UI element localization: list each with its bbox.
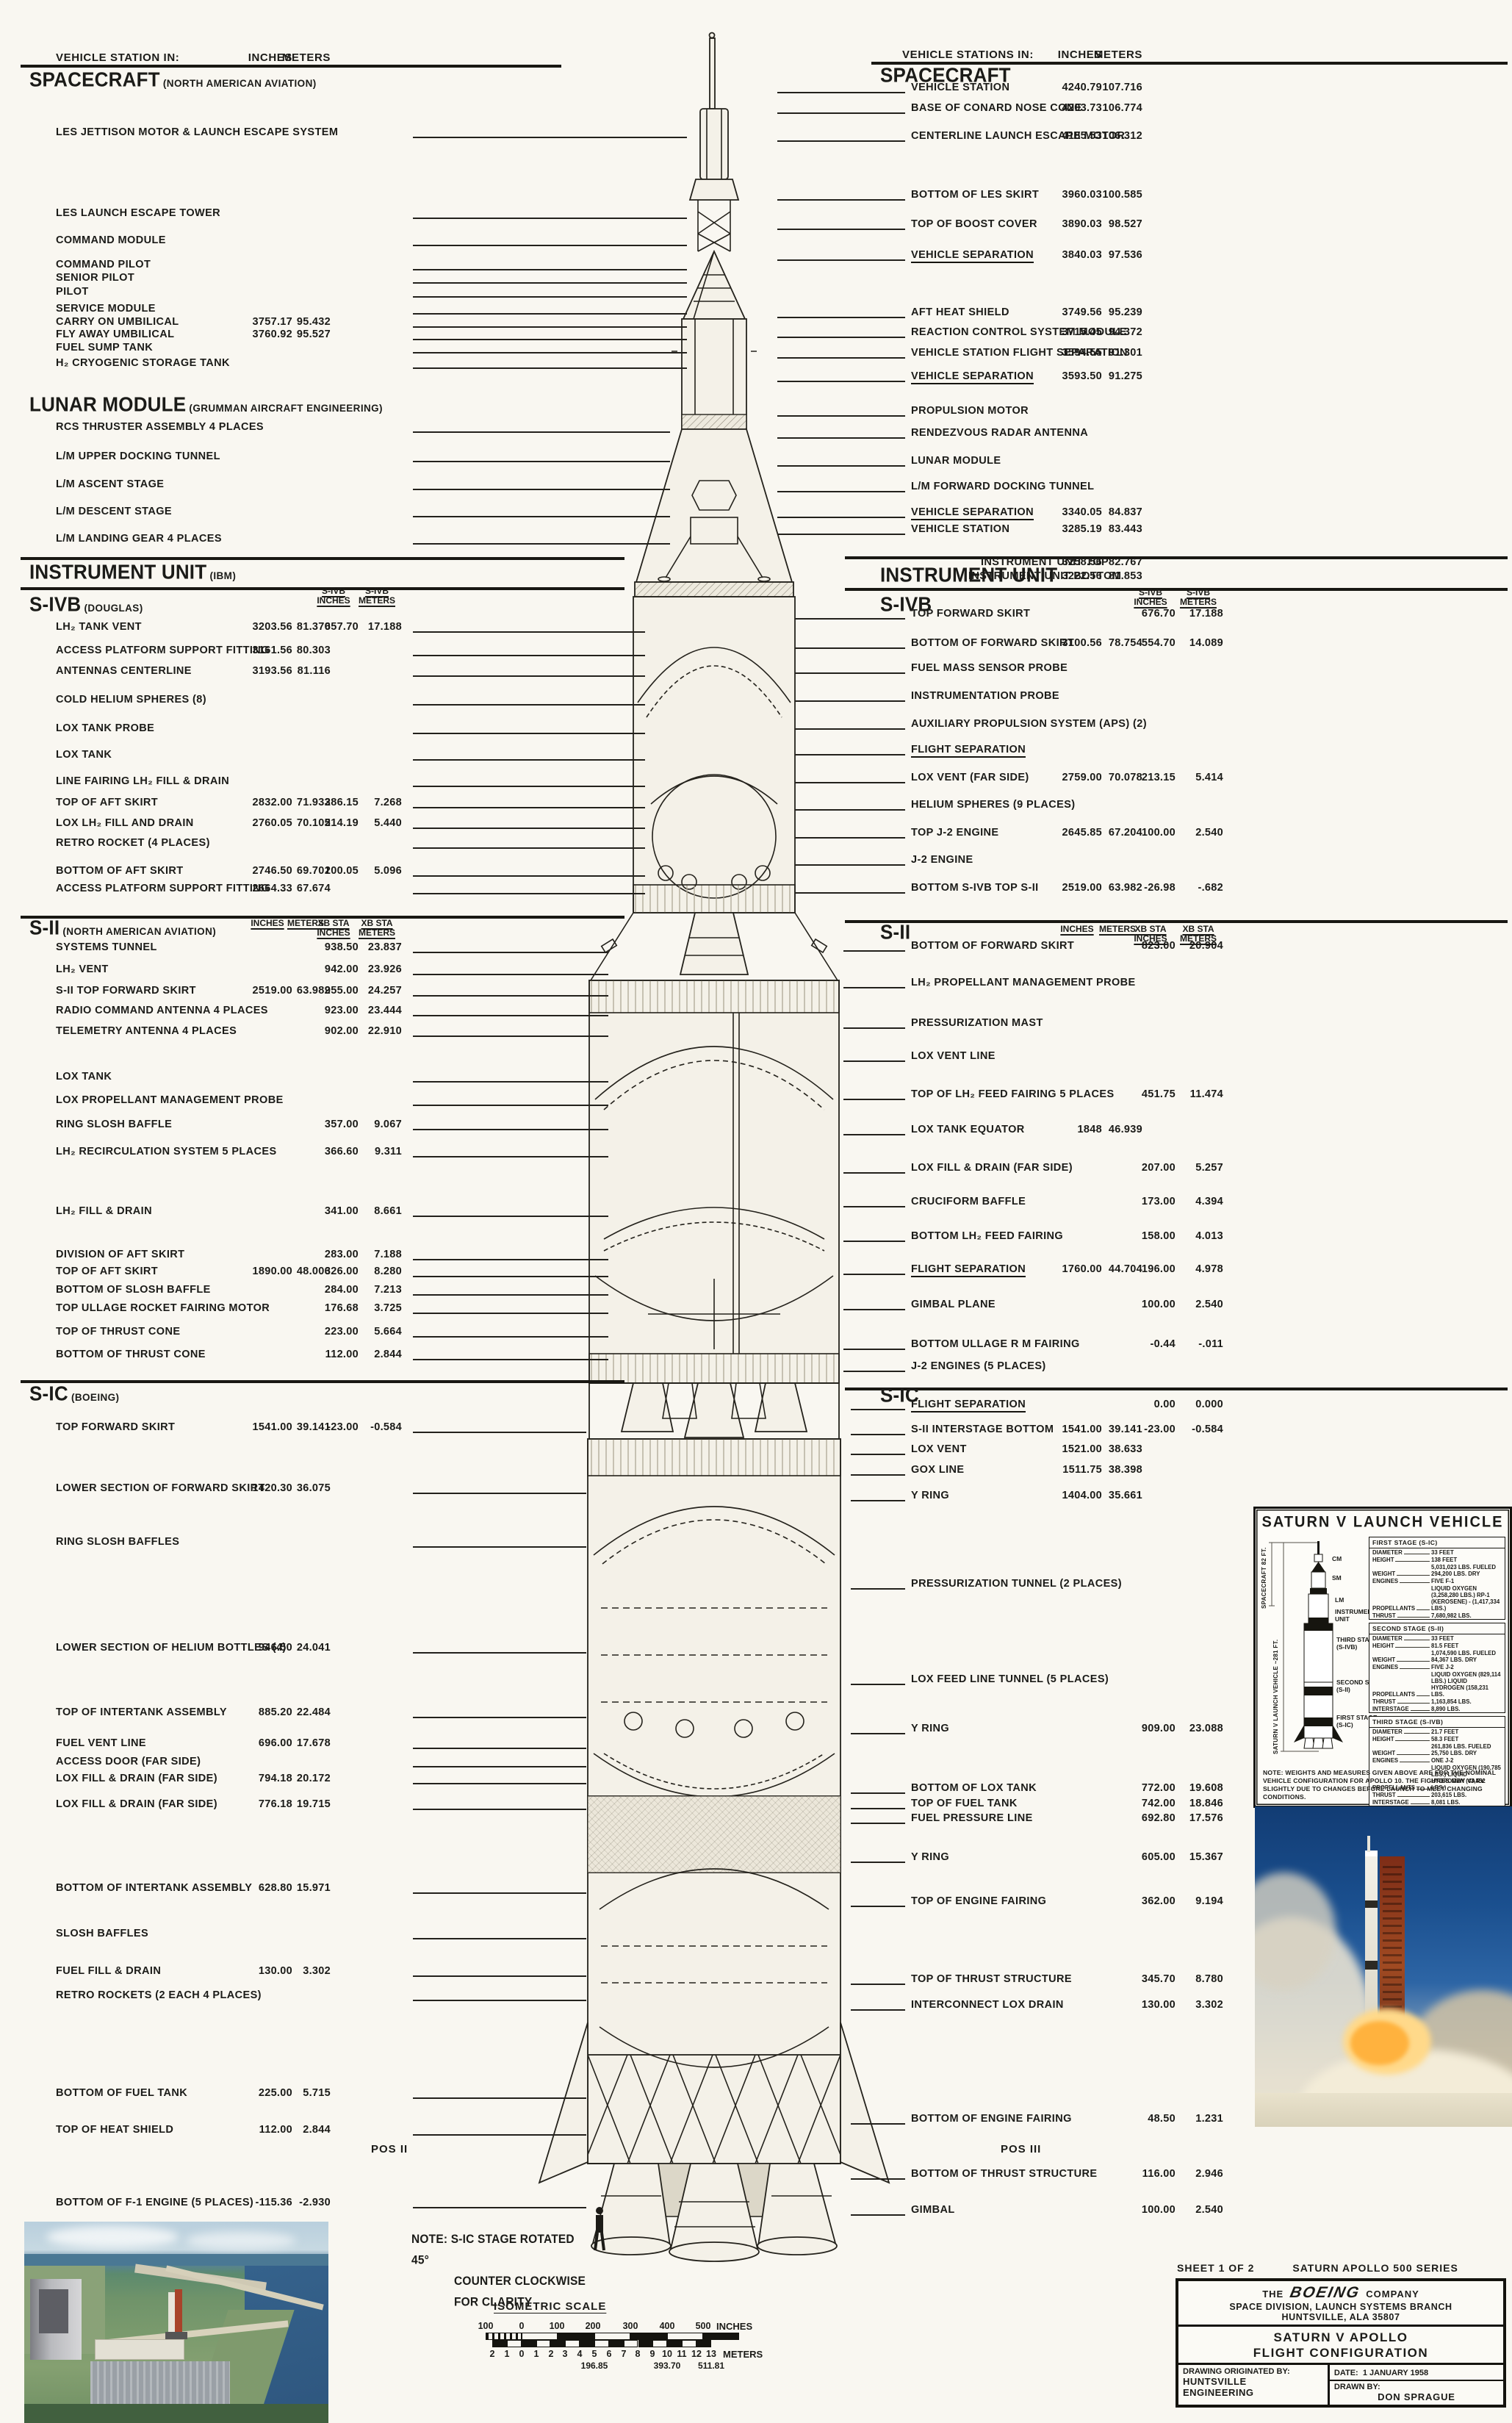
leader-line <box>413 1259 608 1260</box>
station-label: AUXILIARY PROPULSION SYSTEM (APS) (2) <box>911 718 1147 730</box>
station-label: PRESSURIZATION TUNNEL (2 PLACES) <box>911 1578 1122 1590</box>
station-value: 81.853 <box>1062 570 1142 582</box>
leader-line <box>777 534 905 535</box>
spec-row: HEIGHT138 FEET <box>1369 1556 1505 1563</box>
leader-line <box>851 1792 905 1794</box>
scale-item: 300 <box>623 2321 638 2331</box>
station-row: VEHICLE STATION FLIGHT SEPARATION3594.55… <box>0 347 1512 362</box>
spec-value: FIVE J-2 <box>1431 1664 1502 1670</box>
leader-line <box>851 2123 905 2125</box>
spec-group-title: THIRD STAGE (S-IVB) <box>1369 1717 1505 1728</box>
inset-note: NOTE: WEIGHTS AND MEASURES GIVEN ABOVE A… <box>1263 1769 1502 1801</box>
station-row: AUXILIARY PROPULSION SYSTEM (APS) (2) <box>0 718 1512 733</box>
station-value: 9.311 <box>321 1146 402 1157</box>
spec-value: 1,074,590 LBS. FUELED 84,367 LBS. DRY <box>1431 1650 1502 1663</box>
scale-item <box>594 2340 609 2347</box>
leader-line <box>413 1546 586 1548</box>
pos-iii-label: POS III <box>1001 2143 1041 2155</box>
leader-line <box>413 1156 608 1157</box>
leader-line <box>851 1588 905 1590</box>
station-label: FUEL PRESSURE LINE <box>911 1812 1033 1824</box>
leader-dots <box>1411 1710 1430 1711</box>
leader-line <box>851 1984 905 1985</box>
leader-line <box>795 782 905 783</box>
spec-group-title: SECOND STAGE (S-II) <box>1369 1623 1505 1634</box>
station-value: 97.536 <box>1062 249 1142 261</box>
lm-label: LM <box>1335 1597 1344 1604</box>
station-value: 84.837 <box>1062 506 1142 518</box>
scale-item: 11 <box>677 2349 686 2359</box>
leader-line <box>777 357 905 359</box>
station-label: BOTTOM OF FUEL TANK <box>56 2087 187 2099</box>
station-label: BOTTOM OF ENGINE FAIRING <box>911 2113 1072 2125</box>
station-row: CENTERLINE LAUNCH ESCAPE MOTOR4185.53106… <box>0 130 1512 145</box>
leader-line <box>843 1027 905 1029</box>
leader-dots <box>1404 1733 1430 1734</box>
station-value: 38.398 <box>1062 1464 1142 1476</box>
station-value: 7.188 <box>321 1249 402 1260</box>
leader-line <box>777 381 905 382</box>
spec-row: ENGINESONE J-2 <box>1369 1756 1505 1764</box>
station-label: GIMBAL <box>911 2204 955 2216</box>
station-row: LOX VENT1521.0038.633 <box>0 1443 1512 1458</box>
leader-line <box>851 1862 905 1863</box>
station-label: BOTTOM LH₂ FEED FAIRING <box>911 1230 1063 1242</box>
station-row: LH₂ PROPELLANT MANAGEMENT PROBE <box>0 977 1512 991</box>
station-value: 2.540 <box>1142 2204 1223 2216</box>
station-label: TOP OF THRUST STRUCTURE <box>911 1973 1072 1985</box>
station-label: Y RING <box>911 1490 949 1501</box>
station-row: DIVISION OF AFT SKIRT283.007.188 <box>0 1249 1512 1263</box>
leader-line <box>413 1105 608 1106</box>
leader-line <box>777 517 905 518</box>
leader-line <box>413 269 687 270</box>
station-label: FUEL VENT LINE <box>56 1737 146 1749</box>
spec-value: LIQUID OXYGEN (3,258,280 LBS.) RP-1 (KER… <box>1431 1585 1502 1612</box>
station-label: TOP OF THRUST CONE <box>56 1326 180 1338</box>
station-label: PRESSURIZATION MAST <box>911 1017 1043 1029</box>
leader-line <box>777 229 905 230</box>
station-row: CRUCIFORM BAFFLE173.004.394 <box>0 1196 1512 1210</box>
station-row: LOX VENT (FAR SIDE)2759.0070.078213.155.… <box>0 772 1512 786</box>
scale-item <box>558 2333 594 2340</box>
station-value: 7.213 <box>321 1284 402 1296</box>
leader-dots <box>1400 1762 1430 1762</box>
spec-key: ENGINES <box>1372 1664 1398 1670</box>
station-label: AFT HEAT SHIELD <box>911 306 1009 318</box>
scale-item <box>667 2340 682 2347</box>
spec-value: LIQUID OXYGEN (829,114 LBS.) LIQUID HYDR… <box>1431 1671 1502 1698</box>
scale-item <box>492 2340 507 2347</box>
leader-line <box>795 672 905 674</box>
station-row: INSTRUMENTATION PROBE <box>0 690 1512 705</box>
scale-item: 0 <box>519 2349 525 2359</box>
station-row: LOX TANK <box>0 1071 1512 1085</box>
station-label: GOX LINE <box>911 1464 965 1476</box>
leader-line <box>413 733 645 734</box>
station-value: 18.846 <box>1142 1798 1223 1809</box>
station-value: 22.484 <box>250 1706 331 1718</box>
station-label: DIVISION OF AFT SKIRT <box>56 1249 184 1260</box>
leader-line <box>777 259 905 261</box>
station-value: 17.188 <box>1142 608 1223 620</box>
station-label: HELIUM SPHERES (9 PLACES) <box>911 799 1076 811</box>
leader-line <box>851 1474 905 1476</box>
station-label: LH₂ PROPELLANT MANAGEMENT PROBE <box>911 977 1136 988</box>
station-label: INSTRUMENTATION PROBE <box>911 690 1059 702</box>
spec-value: ONE J-2 <box>1431 1757 1502 1764</box>
station-value: 5.257 <box>1142 1162 1223 1174</box>
boeing-logo: BOEING <box>1285 2284 1364 2302</box>
station-label: LOX VENT (FAR SIDE) <box>911 772 1029 783</box>
spec-row: PROPELLANTSLIQUID OXYGEN (3,258,280 LBS.… <box>1369 1584 1505 1612</box>
saturn-v-flight-configuration-drawing: VEHICLE STATION IN:INCHESMETERSSPACECRAF… <box>0 0 1512 2423</box>
station-label: TOP OF INTERTANK ASSEMBLY <box>56 1706 227 1718</box>
station-label: INTERCONNECT LOX DRAIN <box>911 1999 1064 2011</box>
drawing-title: SATURN V APOLLOFLIGHT CONFIGURATION <box>1178 2327 1503 2365</box>
title-block: THE BOEING COMPANY SPACE DIVISION, LAUNC… <box>1176 2278 1506 2408</box>
station-row: BOTTOM ULLAGE R M FAIRING-0.44-.011 <box>0 1338 1512 1353</box>
section-rule <box>845 1388 1508 1390</box>
station-label: RADIO COMMAND ANTENNA 4 PLACES <box>56 1005 268 1016</box>
scale-item: 500 <box>696 2321 711 2331</box>
station-value: 1.231 <box>1142 2113 1223 2125</box>
station-label: J-2 ENGINE <box>911 854 973 866</box>
station-row: GOX LINE1511.7538.398 <box>0 1464 1512 1479</box>
leader-dots <box>1397 1661 1430 1662</box>
station-label: BOTTOM OF FORWARD SKIRT <box>911 940 1074 952</box>
station-label: COMMAND MODULE <box>56 234 166 246</box>
station-value: 14.089 <box>1142 637 1223 649</box>
station-value: 83.443 <box>1062 523 1142 535</box>
leader-line <box>795 892 905 894</box>
station-label: VEHICLE SEPARATION <box>911 249 1034 263</box>
spec-value: 58.3 FEET <box>1431 1736 1502 1742</box>
spacecraft-dim-label: SPACECRAFT 82 FT. <box>1261 1541 1267 1609</box>
spec-key: WEIGHT <box>1372 1750 1395 1756</box>
leader-line <box>843 950 905 952</box>
leader-line <box>843 1206 905 1207</box>
station-row: INSTRUMENT UNIT BOTTOM3222.5681.853 <box>0 570 1512 585</box>
leader-line <box>795 618 905 620</box>
station-row: VEHICLE SEPARATION3340.0584.837 <box>0 506 1512 521</box>
leader-line <box>413 1216 608 1217</box>
column-header-title: VEHICLE STATIONS IN: <box>902 49 1034 61</box>
station-row: LH₂ VENT942.0023.926 <box>0 963 1512 978</box>
leader-line <box>413 1015 608 1016</box>
station-label: CRUCIFORM BAFFLE <box>911 1196 1026 1207</box>
station-label: SLOSH BAFFLES <box>56 1928 148 1939</box>
station-label: LH₂ RECIRCULATION SYSTEM 5 PLACES <box>56 1146 277 1157</box>
station-label: VEHICLE SEPARATION <box>911 370 1034 384</box>
scale-item: 100 <box>550 2321 565 2331</box>
scale-item: 393.70 <box>654 2361 681 2371</box>
station-label: BOTTOM OF THRUST STRUCTURE <box>911 2168 1097 2180</box>
leader-dots <box>1400 1668 1430 1669</box>
column-subheader: S-IVB METERS <box>1170 588 1226 607</box>
station-row: TOP FORWARD SKIRT676.7017.188 <box>0 608 1512 622</box>
leader-line <box>843 1349 905 1350</box>
station-value: 2.540 <box>1142 827 1223 839</box>
leader-dots <box>1404 1554 1430 1554</box>
vab-rollout-aerial-photo <box>24 2222 328 2423</box>
leader-dots <box>1397 1617 1430 1618</box>
station-row: J-2 ENGINES (5 PLACES) <box>0 1360 1512 1375</box>
station-label: LOX FILL & DRAIN (FAR SIDE) <box>911 1162 1073 1174</box>
leader-line <box>413 1294 608 1296</box>
station-row: VEHICLE STATION4240.79107.716 <box>0 82 1512 96</box>
scale-item <box>522 2340 536 2347</box>
spec-row: DIAMETER33 FEET <box>1369 1634 1505 1642</box>
sheet-line: SHEET 1 OF 2SATURN APOLLO 500 SERIES <box>1177 2262 1500 2274</box>
leader-line <box>851 1808 905 1809</box>
isometric-scale: ISOMETRIC SCALE 1000100200300400500INCHE… <box>463 2296 801 2391</box>
station-label: L/M FORWARD DOCKING TUNNEL <box>911 481 1094 492</box>
station-label: PROPULSION MOTOR <box>911 405 1029 417</box>
spec-key: DIAMETER <box>1372 1729 1403 1735</box>
spec-row: HEIGHT58.3 FEET <box>1369 1735 1505 1742</box>
spec-key: DIAMETER <box>1372 1549 1403 1556</box>
station-row: GIMBAL100.002.540 <box>0 2204 1512 2219</box>
station-value: 91.301 <box>1062 347 1142 359</box>
leader-line <box>851 1500 905 1501</box>
scale-item <box>638 2340 653 2347</box>
scale-item: 7 <box>622 2349 627 2359</box>
spec-group: FIRST STAGE (S-IC)DIAMETER33 FEETHEIGHT1… <box>1369 1537 1505 1620</box>
scale-item: 200 <box>586 2321 601 2331</box>
spec-value: 21.7 FEET <box>1431 1729 1502 1735</box>
station-value: 35.661 <box>1062 1490 1142 1501</box>
leader-dots <box>1416 1695 1430 1696</box>
station-label: BOTTOM S-IVB TOP S-II <box>911 882 1039 894</box>
leader-line <box>843 1241 905 1242</box>
leader-dots <box>1395 1647 1430 1648</box>
station-row: COMMAND MODULE <box>0 234 1512 249</box>
scale-item: 2 <box>549 2349 554 2359</box>
station-label: LUNAR MODULE <box>911 455 1001 467</box>
column-header-title: VEHICLE STATION IN: <box>56 51 179 64</box>
spec-key: DIAMETER <box>1372 1635 1403 1642</box>
leader-line <box>413 1081 608 1083</box>
station-label: LH₂ VENT <box>56 963 109 975</box>
station-value: 107.716 <box>1062 82 1142 93</box>
spec-row: ENGINESFIVE J-2 <box>1369 1663 1505 1670</box>
station-label: LH₂ TANK VENT <box>56 621 142 633</box>
isometric-scale-title: ISOMETRIC SCALE <box>494 2300 606 2313</box>
leader-line <box>413 655 645 656</box>
leader-dots <box>1395 1561 1430 1562</box>
station-row: AFT HEAT SHIELD3749.5695.239 <box>0 306 1512 321</box>
leader-line <box>843 1099 905 1100</box>
station-row: BOTTOM OF FORWARD SKIRT823.0020.904 <box>0 940 1512 955</box>
station-row: TOP J-2 ENGINE2645.8567.204100.002.540 <box>0 827 1512 841</box>
station-row: FUEL MASS SENSOR PROBE <box>0 662 1512 677</box>
scale-item: 100 <box>478 2321 494 2331</box>
station-value: 106.312 <box>1062 130 1142 142</box>
leader-line <box>413 1035 608 1037</box>
saturn-v-launch-photo <box>1255 1806 1512 2127</box>
station-row: LOX FILL & DRAIN (FAR SIDE)207.005.257 <box>0 1162 1512 1177</box>
leader-line <box>413 631 645 633</box>
scale-item: 5 <box>592 2349 597 2359</box>
leader-line <box>413 847 645 849</box>
section-name: S-II <box>29 916 60 940</box>
scale-item <box>550 2340 565 2347</box>
station-label: TOP OF LH₂ FEED FAIRING 5 PLACES <box>911 1088 1115 1100</box>
station-row: PROPULSION MOTOR <box>0 405 1512 420</box>
scale-item <box>652 2340 667 2347</box>
station-value: 15.367 <box>1142 1851 1223 1863</box>
station-row: BOTTOM OF SLOSH BAFFLE284.007.213 <box>0 1284 1512 1299</box>
leader-line <box>777 437 905 439</box>
station-value: 94.372 <box>1062 326 1142 338</box>
station-row: LH₂ TANK VENT3203.5681.370657.7017.188 <box>0 621 1512 636</box>
scale-item: 2 <box>490 2349 495 2359</box>
station-row: FLIGHT SEPARATION1760.0044.704196.004.97… <box>0 1263 1512 1278</box>
station-label: VEHICLE STATION <box>911 523 1009 535</box>
scale-item <box>522 2333 558 2340</box>
scale-item: 1 <box>505 2349 510 2359</box>
spec-value: 33 FEET <box>1431 1635 1502 1642</box>
column-header-meters: METERS <box>1084 49 1142 61</box>
leader-line <box>777 199 905 201</box>
section-subtitle: (NORTH AMERICAN AVIATION) <box>60 926 216 937</box>
scale-item: 9 <box>650 2349 655 2359</box>
scale-item <box>594 2333 630 2340</box>
leader-line <box>795 700 905 702</box>
scale-item: 13 <box>706 2349 716 2359</box>
spec-value: 7,680,982 LBS. <box>1431 1612 1502 1619</box>
station-value: 0.000 <box>1142 1399 1223 1410</box>
station-value: 5.664 <box>321 1326 402 1338</box>
leader-line <box>413 367 687 369</box>
scale-item <box>609 2340 624 2347</box>
spec-row: WEIGHT261,836 LBS. FUELED 25,750 LBS. DR… <box>1369 1742 1505 1756</box>
spec-value: 1,163,854 LBS. <box>1431 1698 1502 1705</box>
leader-line <box>795 809 905 811</box>
leader-line <box>777 317 905 318</box>
station-value: 9.194 <box>1142 1895 1223 1907</box>
spec-row: THRUST7,680,982 LBS. <box>1369 1612 1505 1619</box>
station-value: 17.678 <box>250 1737 331 1749</box>
scale-item: INCHES <box>716 2321 752 2332</box>
scale-item <box>703 2333 739 2340</box>
station-label: SENIOR PILOT <box>56 272 134 284</box>
scale-item: 8 <box>636 2349 641 2359</box>
leader-dots <box>1400 1582 1430 1583</box>
leader-dots <box>1397 1754 1430 1755</box>
leader-line <box>413 1748 586 1749</box>
spec-value: 81.5 FEET <box>1431 1643 1502 1649</box>
station-value: 8.780 <box>1142 1973 1223 1985</box>
station-value: -.011 <box>1142 1338 1223 1350</box>
column-header-meters: METERS <box>272 51 331 64</box>
spec-row: DIAMETER33 FEET <box>1369 1548 1505 1556</box>
scale-item: 0 <box>519 2321 525 2331</box>
spec-key: HEIGHT <box>1372 1643 1394 1649</box>
spec-key: THRUST <box>1372 1612 1396 1619</box>
leader-line <box>413 282 687 284</box>
station-row: L/M FORWARD DOCKING TUNNEL <box>0 481 1512 495</box>
leader-line <box>413 875 645 877</box>
scale-item: METERS <box>723 2349 763 2360</box>
station-value: 19.608 <box>1142 1782 1223 1794</box>
station-value: 17.576 <box>1142 1812 1223 1824</box>
leader-line <box>413 1892 586 1894</box>
station-row: SENIOR PILOT <box>0 272 1512 287</box>
leader-line <box>843 1172 905 1174</box>
station-label: LES LAUNCH ESCAPE TOWER <box>56 207 220 219</box>
spec-key: WEIGHT <box>1372 1656 1395 1663</box>
station-value: 98.527 <box>1062 218 1142 230</box>
station-value: 23.926 <box>321 963 402 975</box>
leader-line <box>413 2134 586 2136</box>
station-row: VEHICLE SEPARATION3593.5091.275 <box>0 370 1512 385</box>
scale-item: 4 <box>577 2349 583 2359</box>
station-value: 2.540 <box>1142 1299 1223 1310</box>
spec-key: PROPELLANTS <box>1372 1691 1415 1698</box>
leader-line <box>413 759 645 761</box>
station-label: Y RING <box>911 1723 949 1734</box>
spec-key: THRUST <box>1372 1698 1396 1705</box>
leader-line <box>413 245 687 246</box>
leader-dots <box>1395 1740 1430 1741</box>
scale-item: 511.81 <box>698 2361 724 2371</box>
station-row: Y RING1404.0035.661 <box>0 1490 1512 1504</box>
station-row: LH₂ RECIRCULATION SYSTEM 5 PLACES366.609… <box>0 1146 1512 1160</box>
leader-line <box>413 1938 586 1939</box>
station-row: GIMBAL PLANE100.002.540 <box>0 1299 1512 1313</box>
station-value: 17.188 <box>321 621 402 633</box>
leader-line <box>795 837 905 839</box>
station-row: BOTTOM S-IVB TOP S-II2519.0063.982-26.98… <box>0 882 1512 897</box>
leader-line <box>851 1906 905 1907</box>
scale-item <box>486 2333 522 2340</box>
leader-line <box>413 1336 608 1338</box>
station-value: 11.474 <box>1142 1088 1223 1100</box>
station-label: BOTTOM OF LOX TANK <box>911 1782 1037 1794</box>
station-value: 82.767 <box>1062 556 1142 568</box>
station-value: -0.584 <box>1142 1424 1223 1435</box>
spec-row: DIAMETER21.7 FEET <box>1369 1728 1505 1735</box>
leader-dots <box>1411 1803 1430 1804</box>
station-value: 4.978 <box>1142 1263 1223 1275</box>
station-value: 5.715 <box>250 2087 331 2099</box>
scale-item <box>624 2340 638 2347</box>
station-value: 5.414 <box>1142 772 1223 783</box>
station-label: FUEL MASS SENSOR PROBE <box>911 662 1068 674</box>
scale-item <box>682 2340 696 2347</box>
station-value: 4.013 <box>1142 1230 1223 1242</box>
leader-line <box>843 1309 905 1310</box>
leader-line <box>777 112 905 114</box>
station-row: BOTTOM OF FORWARD SKIRT3100.5678.754554.… <box>0 637 1512 652</box>
cm-label: CM <box>1332 1556 1342 1563</box>
spec-value: 8,890 LBS. <box>1431 1706 1502 1712</box>
station-label: LOX FEED LINE TUNNEL (5 PLACES) <box>911 1673 1109 1685</box>
leader-line <box>851 1434 905 1435</box>
leader-line <box>851 2178 905 2180</box>
station-row: BOTTOM OF LES SKIRT3960.03100.585 <box>0 189 1512 204</box>
leader-line <box>795 728 905 730</box>
station-label: FLIGHT SEPARATION <box>911 1263 1026 1277</box>
station-value: 91.275 <box>1062 370 1142 382</box>
station-row: PILOT <box>0 286 1512 301</box>
leader-line <box>413 1766 586 1767</box>
station-row: BASE OF CONARD NOSE CONE4203.73106.774 <box>0 102 1512 117</box>
station-label: BOTTOM OF SLOSH BAFFLE <box>56 1284 211 1296</box>
station-row: INSTRUMENT UNIT TOP3258.5682.767 <box>0 556 1512 571</box>
